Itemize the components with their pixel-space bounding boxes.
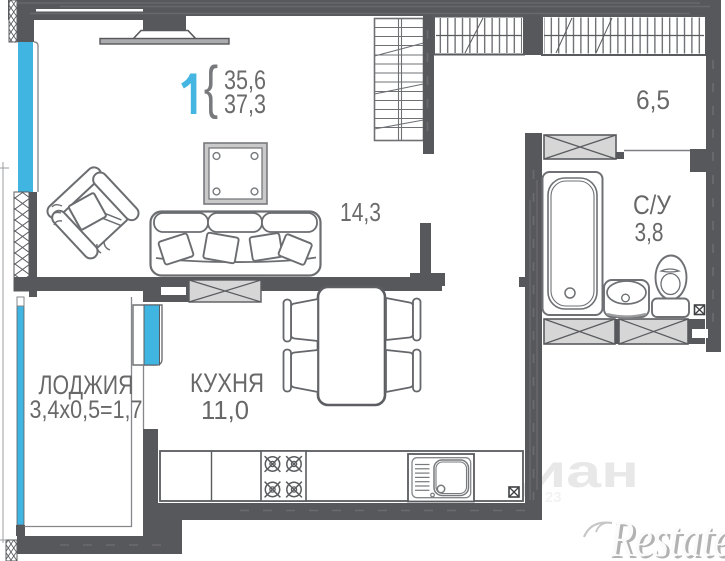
svg-text:С/У: С/У bbox=[633, 190, 672, 220]
svg-text:11,0: 11,0 bbox=[201, 395, 249, 425]
svg-text:3,4х0,5=1,7: 3,4х0,5=1,7 bbox=[30, 396, 143, 424]
svg-text:Restate: Restate bbox=[608, 511, 725, 561]
svg-text:КУХНЯ: КУХНЯ bbox=[190, 368, 264, 398]
svg-text:6,5: 6,5 bbox=[636, 85, 670, 115]
svg-text:3,8: 3,8 bbox=[635, 217, 664, 247]
svg-text:37,3: 37,3 bbox=[224, 89, 266, 119]
svg-text:{: { bbox=[204, 54, 218, 119]
svg-text:14,3: 14,3 bbox=[340, 197, 381, 227]
